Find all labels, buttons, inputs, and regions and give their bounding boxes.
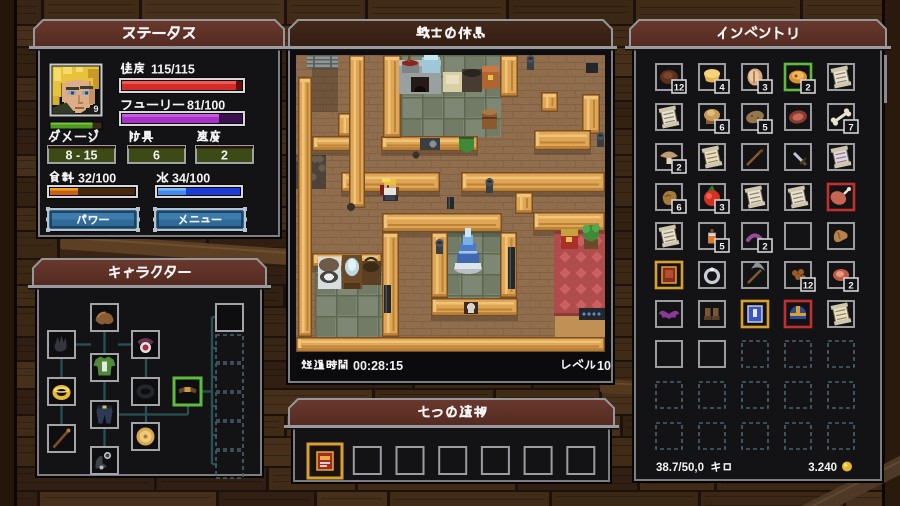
- svg-text:38.7/50,0: 38.7/50,0: [656, 462, 704, 474]
- svg-text:115/115: 115/115: [151, 63, 195, 77]
- svg-text:2: 2: [848, 281, 853, 292]
- svg-text:8 - 15: 8 - 15: [66, 149, 98, 163]
- svg-text:6: 6: [676, 203, 681, 214]
- svg-text:5: 5: [719, 242, 725, 253]
- svg-text:2: 2: [805, 83, 810, 94]
- svg-text:2: 2: [762, 242, 767, 253]
- svg-text:3: 3: [719, 203, 724, 214]
- svg-text:9: 9: [93, 104, 98, 114]
- svg-text:7: 7: [848, 123, 853, 134]
- svg-text:32/100: 32/100: [78, 172, 116, 186]
- svg-text:4: 4: [719, 83, 725, 94]
- svg-text:2: 2: [676, 163, 681, 174]
- svg-text:6: 6: [719, 123, 724, 134]
- svg-text:00:28:15: 00:28:15: [353, 359, 403, 373]
- svg-text:2: 2: [221, 149, 228, 163]
- svg-text:34/100: 34/100: [172, 172, 210, 186]
- svg-text:3.240: 3.240: [808, 462, 837, 474]
- svg-text:12: 12: [803, 281, 814, 292]
- svg-text:12: 12: [674, 83, 685, 94]
- svg-text:10: 10: [597, 359, 611, 373]
- svg-text:5: 5: [762, 123, 768, 134]
- svg-text:3: 3: [762, 83, 767, 94]
- svg-text:6: 6: [153, 149, 160, 163]
